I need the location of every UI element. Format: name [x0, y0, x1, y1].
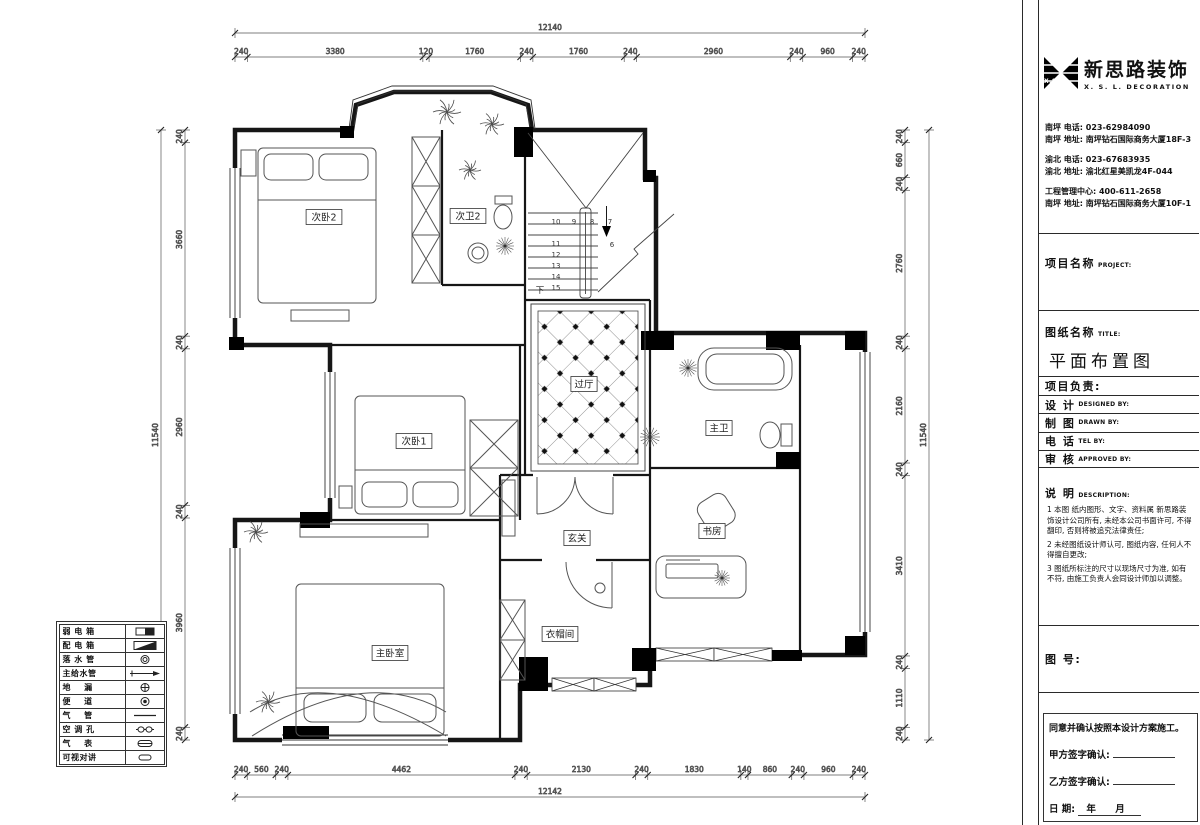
date-line[interactable]: 年 月 — [1078, 801, 1140, 816]
svg-text:12: 12 — [552, 251, 561, 259]
contact-line: 渝北 电话: 023-67683935 — [1045, 154, 1193, 166]
svg-text:240: 240 — [175, 129, 184, 144]
ceiling-light-icon — [679, 359, 697, 377]
svg-text:14: 14 — [552, 273, 561, 281]
svg-text:1760: 1760 — [569, 47, 588, 56]
svg-text:12140: 12140 — [538, 23, 562, 32]
svg-text:2960: 2960 — [704, 47, 723, 56]
floor-plan: 次卧2次卫2过厅次卧1主卫玄关书房主卧室衣帽间1098761112131415下… — [0, 0, 1200, 825]
legend-label: 落 水 管 — [60, 653, 126, 666]
svg-text:2960: 2960 — [175, 417, 184, 436]
svg-text:次卧2: 次卧2 — [311, 212, 336, 224]
svg-text:240: 240 — [514, 765, 529, 774]
svg-text:12142: 12142 — [538, 787, 562, 796]
party-b-signature-row[interactable]: 乙方签字确认: — [1049, 774, 1192, 788]
plant-icon — [480, 114, 504, 135]
description-note: 1 本图 纸内图形、文字、资料属 新思路装饰设计公司所有, 未经本公司书面许可,… — [1047, 505, 1193, 537]
legend-label: 气 表 — [60, 737, 126, 750]
svg-text:1110: 1110 — [895, 688, 904, 707]
svg-text:书房: 书房 — [702, 526, 721, 538]
ac-hole-icon — [126, 723, 164, 736]
svg-text:240: 240 — [852, 765, 867, 774]
figure-number-label: 图 号: — [1045, 653, 1081, 666]
svg-text:11: 11 — [552, 240, 561, 248]
svg-text:960: 960 — [820, 47, 835, 56]
legend-row: 气 管 — [60, 708, 164, 722]
legend-label: 气 管 — [60, 709, 126, 722]
svg-text:次卫2: 次卫2 — [455, 211, 480, 223]
party-a-signature-line[interactable] — [1113, 748, 1175, 758]
logo-abbr: X.S.L — [1044, 78, 1064, 85]
svg-text:120: 120 — [419, 47, 434, 56]
brand-name-en: X. S. L. DECORATION — [1084, 83, 1190, 91]
legend-label: 可视对讲 — [60, 751, 126, 764]
svg-text:660: 660 — [895, 153, 904, 168]
description-notes: 1 本图 纸内图形、文字、资料属 新思路装饰设计公司所有, 未经本公司书面许可,… — [1045, 505, 1193, 585]
contact-line: 工程管理中心: 400-611-2658 — [1045, 186, 1193, 198]
sheet-border-line — [1022, 0, 1023, 825]
ceiling-light-icon — [714, 570, 730, 586]
svg-text:240: 240 — [234, 47, 249, 56]
svg-text:240: 240 — [623, 47, 638, 56]
contact-lines: 南坪 电话: 023-62984090南坪 地址: 南坪钻石国际商务大厦18F-… — [1039, 116, 1199, 233]
svg-text:9: 9 — [572, 218, 576, 226]
titleblock-field-row: 电 话TEL BY: — [1039, 432, 1199, 450]
legend-label: 地 漏 — [60, 681, 126, 694]
signoff-fields: 项目负责:设 计DESIGNED BY:制 图DRAWN BY:电 话TEL B… — [1039, 376, 1199, 467]
svg-text:240: 240 — [175, 335, 184, 350]
svg-text:3960: 3960 — [175, 613, 184, 632]
drawing-label-en: TITLE: — [1098, 331, 1121, 338]
svg-text:1830: 1830 — [685, 765, 704, 774]
plant-icon — [459, 160, 481, 179]
svg-text:次卧1: 次卧1 — [401, 436, 426, 448]
project-label-en: PROJECT: — [1098, 262, 1131, 269]
dimension-chain: 2406602402760240216024034102401110240115… — [895, 127, 934, 743]
video-intercom-icon — [126, 751, 164, 764]
water-main-icon — [126, 667, 164, 680]
project-label: 项目名称 — [1045, 257, 1095, 270]
svg-text:240: 240 — [895, 462, 904, 477]
svg-text:7: 7 — [608, 218, 612, 226]
svg-text:11540: 11540 — [919, 423, 928, 447]
svg-text:240: 240 — [519, 47, 534, 56]
description-label: 说 明 — [1045, 487, 1075, 500]
legend-row: 地 漏 — [60, 680, 164, 694]
floor-drain-icon — [126, 681, 164, 694]
svg-text:240: 240 — [275, 765, 290, 774]
staircase — [528, 133, 674, 298]
svg-text:240: 240 — [895, 177, 904, 192]
title-block-panel: X.S.L 新思路装饰 X. S. L. DECORATION 南坪 电话: 0… — [1038, 0, 1199, 825]
svg-text:240: 240 — [234, 765, 249, 774]
ceiling-light-icon — [640, 427, 660, 447]
ceiling-light-icon — [496, 237, 514, 255]
svg-text:13: 13 — [552, 262, 561, 270]
plant-icon — [244, 522, 268, 543]
svg-text:240: 240 — [895, 335, 904, 350]
svg-text:240: 240 — [852, 47, 867, 56]
legend-row: 配 电 箱 — [60, 638, 164, 652]
svg-text:11540: 11540 — [151, 423, 160, 447]
svg-text:240: 240 — [895, 726, 904, 741]
titleblock-field-row: 项目负责: — [1039, 377, 1199, 395]
svg-text:240: 240 — [791, 765, 806, 774]
legend-row: 气 表 — [60, 736, 164, 750]
brand-name-cn: 新思路装饰 — [1084, 55, 1190, 82]
signature-statement: 同意并确认按照本设计方案施工。 — [1049, 721, 1192, 734]
legend-label: 配 电 箱 — [60, 639, 126, 652]
contact-line: 南坪 地址: 南坪钻石国际商务大厦10F-1 — [1045, 198, 1193, 210]
drawing-name-section: 图纸名称TITLE: 平面布置图 — [1039, 310, 1199, 376]
titleblock-field-row: 审 核APPROVED BY: — [1039, 450, 1199, 468]
date-row[interactable]: 日 期: 年 月 — [1049, 801, 1192, 816]
figure-number-section: 图 号: — [1039, 625, 1199, 692]
legend: 弱 电 箱配 电 箱落 水 管主给水管地 漏便 道气 管空 调 孔气 表可视对讲 — [56, 621, 167, 767]
legend-row: 弱 电 箱 — [60, 625, 164, 638]
gas-pipe-icon — [126, 709, 164, 722]
legend-row: 空 调 孔 — [60, 722, 164, 736]
legend-row: 可视对讲 — [60, 750, 164, 764]
downpipe-icon — [126, 653, 164, 666]
svg-text:1760: 1760 — [465, 47, 484, 56]
svg-text:15: 15 — [552, 284, 561, 292]
legend-row: 主给水管 — [60, 666, 164, 680]
svg-text:240: 240 — [895, 129, 904, 144]
dimension-chain: 2405602404462240213024018301408602409602… — [232, 765, 868, 802]
legend-label: 便 道 — [60, 695, 126, 708]
dimension-chain: 2403380120176024017602402960240960240121… — [232, 23, 868, 62]
svg-text:8: 8 — [590, 218, 594, 226]
svg-text:过厅: 过厅 — [574, 379, 594, 391]
gas-meter-icon — [126, 737, 164, 750]
contact-line: 南坪 电话: 023-62984090 — [1045, 122, 1193, 134]
drawing-title: 平面布置图 — [1049, 347, 1193, 372]
svg-text:4462: 4462 — [392, 765, 411, 774]
company-logo: X.S.L 新思路装饰 X. S. L. DECORATION — [1039, 30, 1199, 116]
logo-bowtie-icon: X.S.L — [1043, 56, 1079, 90]
party-a-signature-row[interactable]: 甲方签字确认: — [1049, 747, 1192, 761]
svg-text:240: 240 — [895, 655, 904, 670]
svg-text:240: 240 — [175, 726, 184, 741]
drawing-sheet: 次卧2次卫2过厅次卧1主卫玄关书房主卧室衣帽间1098761112131415下… — [0, 0, 1200, 825]
svg-text:3410: 3410 — [895, 556, 904, 575]
legend-body: 弱 电 箱配 电 箱落 水 管主给水管地 漏便 道气 管空 调 孔气 表可视对讲 — [59, 624, 165, 765]
svg-text:衣帽间: 衣帽间 — [546, 629, 575, 641]
svg-text:860: 860 — [763, 765, 778, 774]
legend-row: 便 道 — [60, 694, 164, 708]
legend-row: 落 水 管 — [60, 652, 164, 666]
signature-section: 同意并确认按照本设计方案施工。 甲方签字确认: 乙方签字确认: 日 期: 年 月 — [1039, 692, 1199, 825]
plant-icon — [433, 100, 461, 124]
contact-line: 南坪 地址: 南坪钻石国际商务大厦18F-3 — [1045, 134, 1193, 146]
project-name-section: 项目名称PROJECT: — [1039, 233, 1199, 310]
titleblock-field-row: 制 图DRAWN BY: — [1039, 413, 1199, 431]
svg-text:2130: 2130 — [572, 765, 591, 774]
svg-text:2760: 2760 — [895, 253, 904, 272]
party-b-signature-line[interactable] — [1113, 775, 1175, 785]
svg-text:960: 960 — [821, 765, 836, 774]
titleblock-field-row: 设 计DESIGNED BY: — [1039, 395, 1199, 413]
svg-text:140: 140 — [737, 765, 752, 774]
legend-label: 主给水管 — [60, 667, 126, 680]
furniture — [241, 137, 792, 736]
description-note: 2 未经图纸设计师认可, 图纸内容, 任何人不得擅自更改; — [1047, 540, 1193, 561]
svg-text:主卧室: 主卧室 — [376, 648, 405, 660]
weak-current-box-icon — [126, 625, 164, 638]
description-section: 说 明DESCRIPTION: 1 本图 纸内图形、文字、资料属 新思路装饰设计… — [1039, 467, 1199, 625]
plant-icon — [256, 692, 280, 713]
toilet-icon — [126, 695, 164, 708]
svg-text:240: 240 — [789, 47, 804, 56]
svg-text:2160: 2160 — [895, 396, 904, 415]
signature-box: 同意并确认按照本设计方案施工。 甲方签字确认: 乙方签字确认: 日 期: 年 月 — [1043, 713, 1198, 822]
drawing-label: 图纸名称 — [1045, 326, 1095, 339]
legend-label: 弱 电 箱 — [60, 625, 126, 638]
svg-text:10: 10 — [552, 218, 561, 226]
svg-text:3380: 3380 — [326, 47, 345, 56]
svg-text:6: 6 — [610, 241, 615, 249]
distribution-box-icon — [126, 639, 164, 652]
svg-text:主卫: 主卫 — [709, 423, 729, 435]
svg-text:玄关: 玄关 — [567, 533, 587, 545]
svg-text:下: 下 — [536, 286, 545, 296]
svg-text:3660: 3660 — [175, 230, 184, 249]
svg-text:240: 240 — [175, 504, 184, 519]
svg-text:560: 560 — [254, 765, 269, 774]
svg-text:240: 240 — [634, 765, 649, 774]
description-note: 3 图纸所标注的尺寸以现场尺寸为准, 如有不符, 由施工负责人会同设计师加以调整… — [1047, 564, 1193, 585]
legend-label: 空 调 孔 — [60, 723, 126, 736]
description-label-en: DESCRIPTION: — [1078, 492, 1130, 499]
contact-line: 渝北 地址: 渝北红星美凯龙4F-044 — [1045, 166, 1193, 178]
